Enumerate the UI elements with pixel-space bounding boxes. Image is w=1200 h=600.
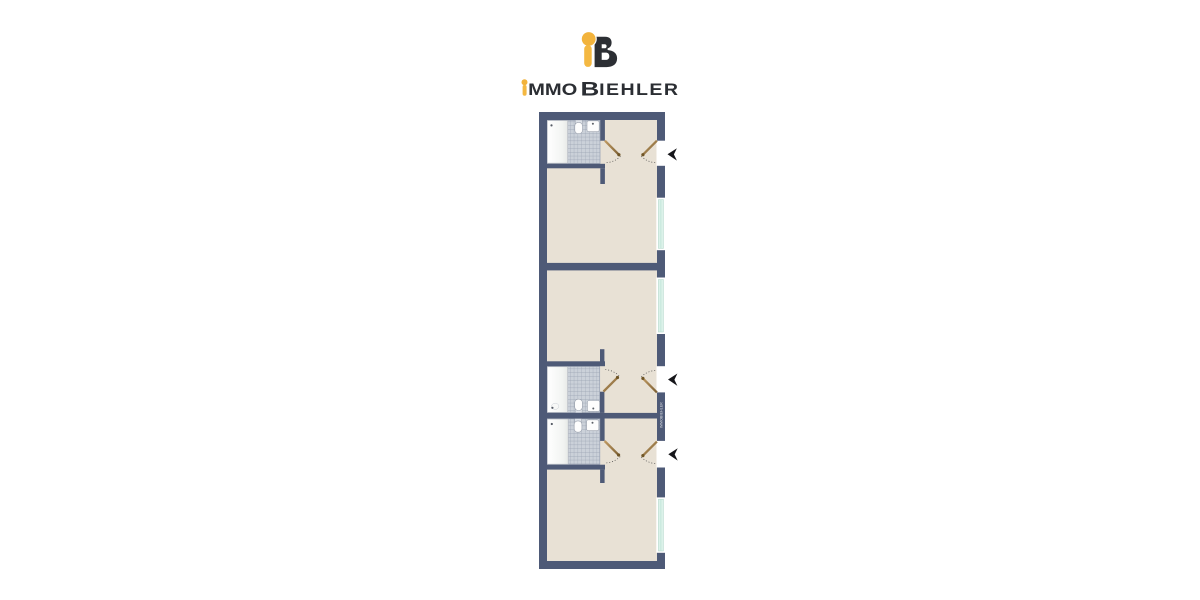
svg-text:B: B — [581, 78, 600, 100]
svg-text:MMO: MMO — [528, 81, 577, 99]
svg-text:IMMOBIEHLER: IMMOBIEHLER — [660, 402, 664, 428]
svg-text:IEHLER: IEHLER — [599, 81, 679, 99]
